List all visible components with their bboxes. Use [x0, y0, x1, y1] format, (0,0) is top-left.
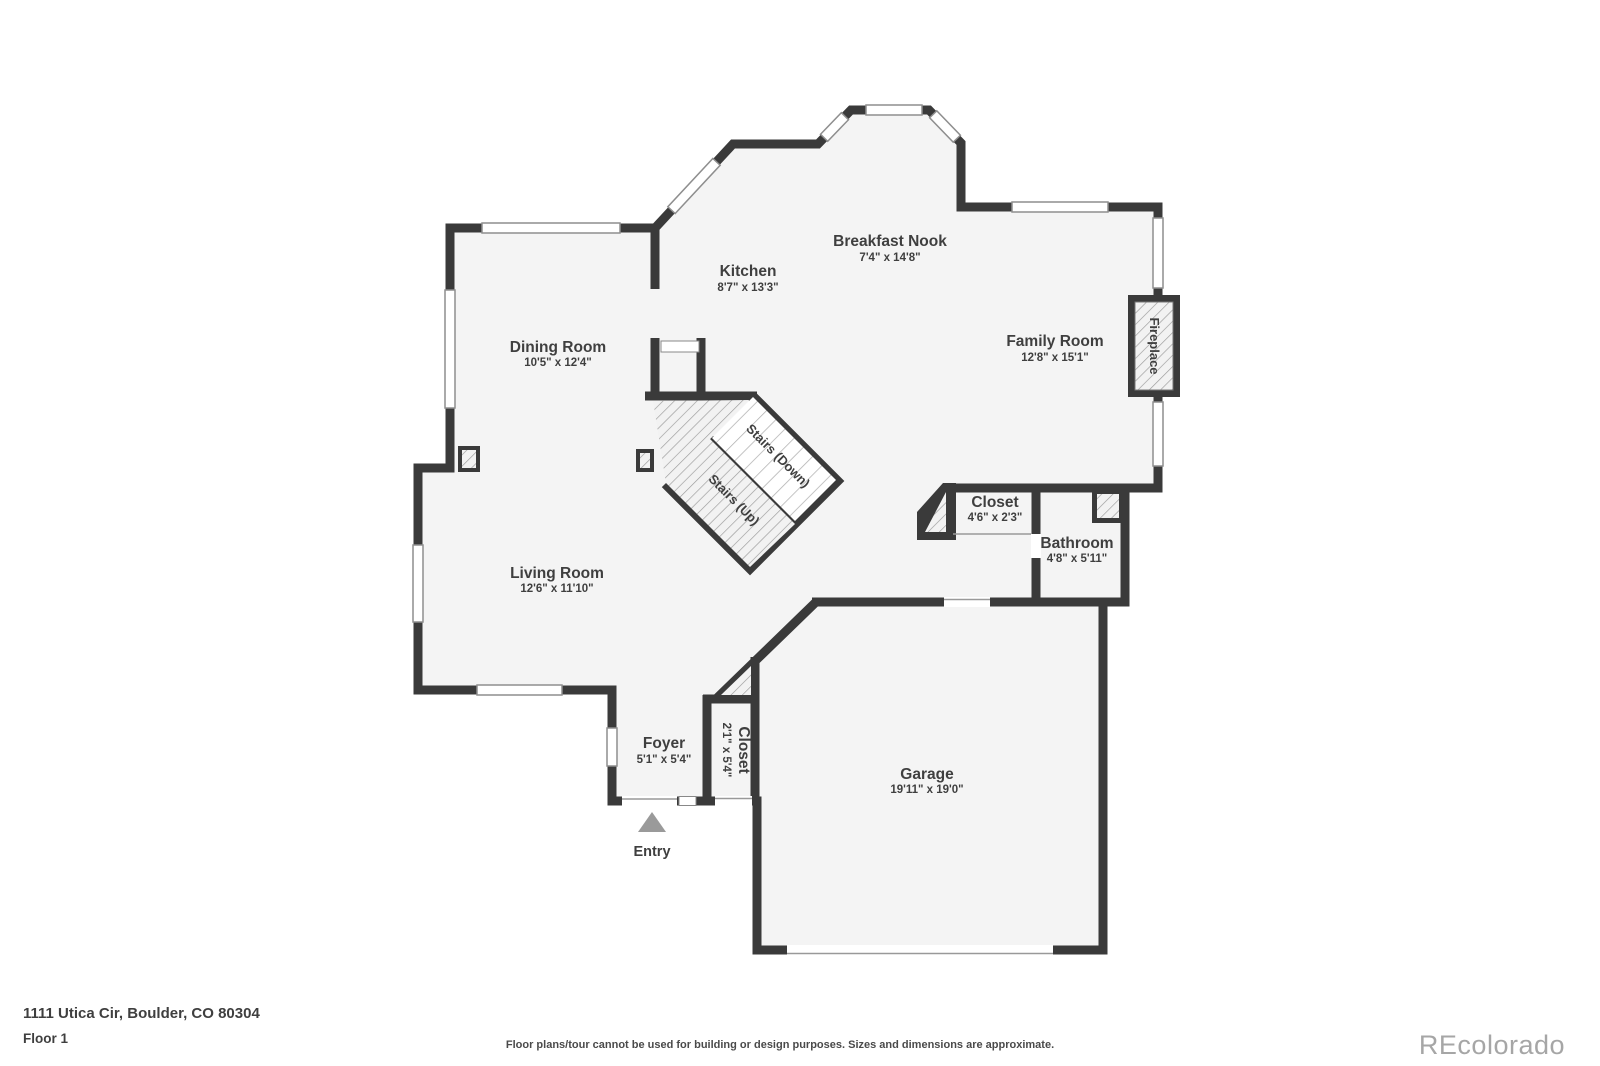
entry-marker: Entry: [633, 812, 670, 860]
room-dims: 4'6" x 2'3": [968, 512, 1023, 524]
stairs-column-hatch: [640, 453, 650, 468]
room-label-dining-room: Dining Room 10'5" x 12'4": [510, 339, 606, 369]
room-name: Family Room: [1006, 333, 1103, 350]
room-dims: 12'6" x 11'10": [520, 583, 593, 595]
room-label-hall-closet: Closet 4'6" x 2'3": [968, 494, 1023, 524]
footer: 1111 Utica Cir, Boulder, CO 80304 Floor …: [23, 1005, 1565, 1060]
room-name: Closet: [971, 494, 1018, 511]
disclaimer-text: Floor plans/tour cannot be used for buil…: [506, 1039, 1054, 1051]
living-bottom-window: [477, 685, 562, 695]
pantry-door-panel: [661, 341, 699, 352]
dining-left-window: [445, 290, 455, 408]
room-name: Dining Room: [510, 339, 606, 356]
floorplan-canvas: Entry Breakfast Nook 7'4" x 14'8" Kitche…: [0, 0, 1600, 1066]
room-dims: 8'7" x 13'3": [717, 282, 778, 294]
room-name: Bathroom: [1040, 535, 1113, 552]
room-dims: 12'8" x 15'1": [1021, 352, 1089, 364]
living-left-window: [413, 545, 423, 622]
dining-column-hatch: [462, 450, 476, 468]
floor-label: Floor 1: [23, 1031, 68, 1046]
room-label-foyer: Foyer 5'1" x 5'4": [637, 735, 692, 766]
entry-opening: [622, 796, 677, 806]
room-label-garage: Garage 19'11" x 19'0": [890, 766, 963, 796]
family-top-window: [1012, 202, 1108, 212]
foyer-left-window: [607, 728, 617, 766]
room-label-kitchen: Kitchen 8'7" x 13'3": [717, 263, 778, 294]
room-dims: 7'4" x 14'8": [859, 252, 920, 264]
room-name: Breakfast Nook: [833, 233, 947, 250]
watermark-logo: REcolorado: [1419, 1030, 1565, 1060]
room-dims: 19'11" x 19'0": [890, 784, 963, 796]
family-right-lower-window: [1153, 402, 1163, 466]
nook-top-window: [866, 105, 922, 115]
room-label-bathroom: Bathroom 4'8" x 5'11": [1040, 535, 1113, 565]
room-dims: 2'1" x 5'4": [720, 723, 732, 778]
room-name: Foyer: [643, 735, 685, 752]
foyer-door-panel: [679, 797, 696, 806]
entry-arrow-icon: [638, 812, 666, 832]
room-label-foyer-closet: Closet 2'1" x 5'4": [720, 723, 752, 778]
entry-label: Entry: [633, 844, 670, 860]
room-name: Closet: [735, 726, 752, 773]
room-dims: 5'1" x 5'4": [637, 754, 692, 766]
fireplace-label: Fireplace: [1147, 317, 1162, 374]
bathroom-column-hatch: [1097, 494, 1119, 518]
room-name: Kitchen: [720, 263, 777, 280]
floorplan-page: Entry Breakfast Nook 7'4" x 14'8" Kitche…: [0, 0, 1600, 1066]
room-dims: 10'5" x 12'4": [524, 357, 592, 369]
address-text: 1111 Utica Cir, Boulder, CO 80304: [23, 1005, 260, 1022]
room-name: Living Room: [510, 565, 604, 582]
garage-entry-opening: [944, 597, 990, 607]
foyer-closet-opening: [715, 796, 752, 806]
family-right-upper-window: [1153, 218, 1163, 288]
room-name: Garage: [900, 766, 954, 783]
room-dims: 4'8" x 5'11": [1047, 553, 1108, 565]
dining-top-window: [482, 223, 620, 233]
room-label-living-room: Living Room 12'6" x 11'10": [510, 565, 604, 595]
